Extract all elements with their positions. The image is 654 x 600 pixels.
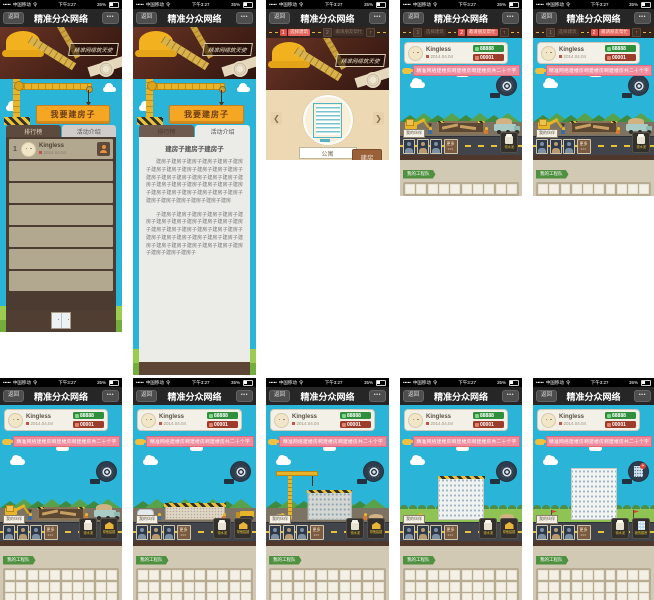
team-slot[interactable] — [639, 570, 649, 580]
team-slot[interactable] — [639, 184, 649, 194]
friend-avatar-card[interactable] — [283, 525, 295, 540]
team-slot[interactable] — [5, 582, 15, 592]
player-card[interactable]: Kingless 2014.04.04 88888 00001 — [404, 42, 508, 64]
blueprint-wheel-badge[interactable]: + — [363, 461, 384, 482]
team-slot[interactable] — [138, 570, 148, 580]
team-slot[interactable] — [484, 582, 494, 592]
blueprint-wheel-badge[interactable]: + — [496, 461, 517, 482]
get-cement-button[interactable]: 领水泥 — [632, 132, 650, 153]
help-build-button[interactable]: 帮他建楼 — [500, 518, 518, 539]
more-friends-button[interactable]: 更多••• — [444, 139, 458, 154]
step-2[interactable]: 2 邀请朋友帮忙 — [323, 28, 365, 37]
team-slot[interactable] — [473, 196, 483, 197]
team-slot[interactable] — [462, 593, 472, 600]
team-slot[interactable] — [416, 196, 426, 197]
player-card[interactable]: Kingless 2014.04.04 88888 00001 — [270, 409, 375, 431]
team-slot[interactable] — [538, 582, 548, 592]
team-grid[interactable] — [536, 182, 651, 196]
friend-avatar-card[interactable] — [550, 139, 562, 154]
team-slot[interactable] — [538, 184, 548, 194]
team-slot[interactable] — [405, 196, 415, 197]
team-slot[interactable] — [583, 593, 593, 600]
back-button[interactable]: 返回 — [3, 12, 24, 24]
team-slot[interactable] — [507, 184, 517, 194]
player-card[interactable]: Kingless 2014.04.04 88888 00001 — [537, 409, 640, 431]
more-friends-button[interactable]: 更多••• — [577, 525, 591, 540]
team-slot[interactable] — [617, 196, 627, 197]
tab-activity-intro[interactable]: 活动介绍 — [62, 125, 117, 137]
more-friends-button[interactable]: 更多••• — [444, 525, 458, 540]
team-slot[interactable] — [207, 593, 217, 600]
blueprint-wheel-badge[interactable]: + — [628, 75, 649, 96]
team-slot[interactable] — [84, 582, 94, 592]
team-slot[interactable] — [538, 570, 548, 580]
team-slot[interactable] — [572, 593, 582, 600]
team-slot[interactable] — [305, 570, 315, 580]
team-slot[interactable] — [241, 570, 251, 580]
team-slot[interactable] — [450, 196, 460, 197]
team-slot[interactable] — [416, 593, 426, 600]
team-slot[interactable] — [405, 570, 415, 580]
more-menu-button[interactable]: ••• — [634, 390, 651, 402]
team-slot[interactable] — [351, 570, 361, 580]
player-card[interactable]: Kingless 2014.04.04 88888 00001 — [404, 409, 508, 431]
team-slot[interactable] — [149, 593, 159, 600]
friend-avatar-card[interactable] — [536, 139, 548, 154]
back-button[interactable]: 返回 — [536, 12, 557, 24]
more-menu-button[interactable]: ••• — [502, 390, 519, 402]
back-button[interactable]: 返回 — [536, 390, 557, 402]
back-button[interactable]: 返回 — [136, 390, 157, 402]
team-slot[interactable] — [583, 196, 593, 197]
team-grid[interactable] — [403, 182, 519, 196]
build-button[interactable]: 建房 — [352, 149, 382, 160]
team-slot[interactable] — [39, 570, 49, 580]
team-slot[interactable] — [583, 570, 593, 580]
get-cement-button[interactable]: 领水泥 — [213, 518, 231, 539]
team-slot[interactable] — [507, 570, 517, 580]
intro-text-area[interactable]: 建房子建房子建房子 建房子建房子建房子建房子建房子建房子建房子建房子建房子建房子… — [139, 137, 250, 362]
team-slot[interactable] — [62, 593, 72, 600]
team-slot[interactable] — [606, 184, 616, 194]
team-slot[interactable] — [496, 593, 506, 600]
team-slot[interactable] — [294, 570, 304, 580]
team-slot[interactable] — [428, 582, 438, 592]
team-slot[interactable] — [473, 582, 483, 592]
team-slot[interactable] — [628, 593, 638, 600]
prev-building-button[interactable]: ❮ — [271, 112, 282, 125]
build-house-sign[interactable]: 我要建房子 — [36, 105, 110, 124]
step-1[interactable]: 1 选择建筑 — [546, 28, 579, 37]
team-slot[interactable] — [328, 582, 338, 592]
team-slot[interactable] — [484, 570, 494, 580]
more-menu-button[interactable]: ••• — [102, 12, 119, 24]
team-slot[interactable] — [62, 582, 72, 592]
promo-banner[interactable]: 精准网络筑天使 — [0, 27, 122, 79]
team-slot[interactable] — [149, 582, 159, 592]
team-slot[interactable] — [138, 593, 148, 600]
team-slot[interactable] — [271, 570, 281, 580]
team-slot[interactable] — [271, 582, 281, 592]
friend-avatar-card[interactable] — [3, 525, 15, 540]
battery-percent: 35% — [629, 2, 638, 7]
team-slot[interactable] — [73, 582, 83, 592]
team-slot[interactable] — [606, 582, 616, 592]
team-slot[interactable] — [39, 593, 49, 600]
team-slot[interactable] — [561, 196, 571, 197]
more-friends-button[interactable]: 更多••• — [177, 525, 191, 540]
team-slot[interactable] — [73, 593, 83, 600]
team-slot[interactable] — [594, 184, 604, 194]
team-slot[interactable] — [496, 582, 506, 592]
team-slot[interactable] — [617, 570, 627, 580]
friend-avatar-card[interactable] — [430, 525, 442, 540]
team-slot[interactable] — [195, 570, 205, 580]
friend-avatar-card[interactable] — [17, 525, 29, 540]
team-slot[interactable] — [96, 593, 106, 600]
dash-divider — [269, 32, 278, 34]
tab-bar: 排行榜 活动介绍 — [133, 125, 256, 137]
team-slot[interactable] — [462, 196, 472, 197]
more-menu-button[interactable]: ••• — [369, 12, 386, 24]
team-slot[interactable] — [561, 184, 571, 194]
team-slot[interactable] — [549, 582, 559, 592]
friend-avatar-card[interactable] — [536, 525, 548, 540]
more-friends-button[interactable]: 更多••• — [44, 525, 58, 540]
team-slot[interactable] — [484, 196, 494, 197]
team-slot[interactable] — [462, 582, 472, 592]
team-slot[interactable] — [351, 582, 361, 592]
friend-avatar-card[interactable] — [403, 139, 415, 154]
team-slot[interactable] — [172, 593, 182, 600]
more-menu-button[interactable]: ••• — [634, 12, 651, 24]
team-slot[interactable] — [428, 184, 438, 194]
friend-avatar-card[interactable] — [150, 525, 162, 540]
friend-avatar-card[interactable] — [550, 525, 562, 540]
more-menu-button[interactable]: ••• — [102, 390, 119, 402]
tab-ranking[interactable]: 排行榜 — [6, 125, 61, 137]
get-cement-button[interactable]: 领水泥 — [500, 132, 518, 153]
team-slot[interactable] — [428, 593, 438, 600]
team-slot[interactable] — [549, 593, 559, 600]
team-slot[interactable] — [572, 582, 582, 592]
team-slot[interactable] — [84, 570, 94, 580]
team-slot[interactable] — [639, 593, 649, 600]
promo-banner[interactable]: 精准网络筑天使 — [133, 27, 256, 79]
blueprint-wheel-badge[interactable]: + — [230, 461, 251, 482]
team-slot[interactable] — [340, 593, 350, 600]
friend-avatar-card[interactable] — [430, 139, 442, 154]
friend-avatar-card[interactable] — [269, 525, 281, 540]
team-slot[interactable] — [16, 570, 26, 580]
team-slot[interactable] — [594, 593, 604, 600]
team-slot[interactable] — [317, 582, 327, 592]
friend-avatar-card[interactable] — [163, 525, 175, 540]
team-slot[interactable] — [328, 593, 338, 600]
team-slot[interactable] — [294, 582, 304, 592]
get-cement-button[interactable]: 领水泥 — [79, 518, 97, 539]
team-slot[interactable] — [507, 196, 517, 197]
team-slot[interactable] — [416, 570, 426, 580]
team-slot[interactable] — [583, 582, 593, 592]
more-friends-button[interactable]: 更多••• — [577, 139, 591, 154]
team-slot[interactable] — [561, 593, 571, 600]
team-slot[interactable] — [439, 570, 449, 580]
collapse-arrow-icon[interactable]: ↑ — [500, 28, 509, 37]
player-card[interactable]: Kingless 2014.04.04 88888 00001 — [137, 409, 242, 431]
team-slot[interactable] — [594, 196, 604, 197]
team-slot[interactable] — [305, 582, 315, 592]
team-slot[interactable] — [161, 593, 171, 600]
step-2[interactable]: 2 邀请朋友帮忙 — [591, 29, 631, 36]
team-slot[interactable] — [416, 184, 426, 194]
friend-avatar-card[interactable] — [417, 139, 429, 154]
team-slot[interactable] — [538, 196, 548, 197]
team-slot[interactable] — [583, 184, 593, 194]
team-slot[interactable] — [405, 593, 415, 600]
friend-avatar-card[interactable] — [136, 525, 148, 540]
more-menu-button[interactable]: ••• — [236, 12, 253, 24]
team-slot[interactable] — [639, 196, 649, 197]
team-slot[interactable] — [439, 593, 449, 600]
tab-activity-intro[interactable]: 活动介绍 — [195, 125, 250, 137]
team-slot[interactable] — [282, 582, 292, 592]
more-menu-button[interactable]: ••• — [236, 390, 253, 402]
team-slot[interactable] — [230, 593, 240, 600]
team-slot[interactable] — [28, 593, 38, 600]
team-slot[interactable] — [172, 582, 182, 592]
team-slot[interactable] — [496, 184, 506, 194]
team-slot[interactable] — [628, 184, 638, 194]
friend-avatar-card[interactable] — [30, 525, 42, 540]
team-slot[interactable] — [50, 582, 60, 592]
collapse-arrow-icon[interactable]: ↑ — [366, 28, 375, 37]
team-slot[interactable] — [282, 570, 292, 580]
team-slot[interactable] — [351, 593, 361, 600]
team-slot[interactable] — [538, 593, 548, 600]
team-slot[interactable] — [496, 196, 506, 197]
team-slot[interactable] — [73, 570, 83, 580]
collapse-arrow-icon[interactable]: ↑ — [632, 28, 641, 37]
team-slot[interactable] — [84, 593, 94, 600]
help-build-button[interactable]: 我的楼房 — [632, 518, 650, 539]
team-slot[interactable] — [241, 593, 251, 600]
team-slot[interactable] — [507, 582, 517, 592]
team-slot[interactable] — [294, 593, 304, 600]
team-slot[interactable] — [50, 593, 60, 600]
friend-avatar-card[interactable] — [403, 525, 415, 540]
team-slot[interactable] — [484, 184, 494, 194]
team-slot[interactable] — [628, 570, 638, 580]
team-slot[interactable] — [16, 593, 26, 600]
team-slot[interactable] — [450, 582, 460, 592]
more-friends-button[interactable]: 更多••• — [310, 525, 324, 540]
team-grid[interactable] — [536, 568, 651, 600]
team-slot[interactable] — [450, 184, 460, 194]
team-slot[interactable] — [450, 570, 460, 580]
team-slot[interactable] — [184, 570, 194, 580]
get-cement-button[interactable]: 领水泥 — [346, 518, 364, 539]
team-slot[interactable] — [172, 570, 182, 580]
team-slot[interactable] — [317, 570, 327, 580]
back-button[interactable]: 返回 — [269, 390, 290, 402]
team-slot[interactable] — [363, 570, 373, 580]
team-slot[interactable] — [218, 570, 228, 580]
team-slot[interactable] — [439, 196, 449, 197]
wifi-icon: 令 — [166, 2, 171, 8]
team-slot[interactable] — [496, 570, 506, 580]
team-slot[interactable] — [639, 582, 649, 592]
team-slot[interactable] — [28, 582, 38, 592]
team-slot[interactable] — [363, 593, 373, 600]
team-slot[interactable] — [218, 582, 228, 592]
team-slot[interactable] — [5, 570, 15, 580]
team-slot[interactable] — [572, 196, 582, 197]
help-build-button[interactable]: 帮他建楼 — [100, 518, 118, 539]
team-slot[interactable] — [628, 582, 638, 592]
team-slot[interactable] — [207, 582, 217, 592]
back-button[interactable]: 返回 — [136, 12, 157, 24]
team-slot[interactable] — [207, 570, 217, 580]
team-slot[interactable] — [96, 582, 106, 592]
team-slot[interactable] — [230, 582, 240, 592]
team-slot[interactable] — [450, 593, 460, 600]
team-slot[interactable] — [374, 570, 384, 580]
team-slot[interactable] — [439, 184, 449, 194]
step-2[interactable]: 2 邀请朋友帮忙 — [458, 29, 498, 36]
friend-avatar-card[interactable] — [563, 139, 575, 154]
get-cement-button[interactable]: 领水泥 — [479, 518, 497, 539]
get-cement-button[interactable]: 领水泥 — [611, 518, 629, 539]
blueprint-wheel-badge[interactable]: + — [96, 461, 117, 482]
player-card[interactable]: Kingless 2014.04.04 88888 00001 — [4, 409, 108, 431]
team-slot[interactable] — [149, 570, 159, 580]
team-slot[interactable] — [473, 593, 483, 600]
team-slot[interactable] — [594, 582, 604, 592]
team-slot[interactable] — [439, 582, 449, 592]
friend-avatar-card[interactable] — [417, 525, 429, 540]
team-slot[interactable] — [462, 570, 472, 580]
team-slot[interactable] — [606, 593, 616, 600]
team-slot[interactable] — [561, 570, 571, 580]
team-slot[interactable] — [16, 582, 26, 592]
team-slot[interactable] — [340, 570, 350, 580]
blueprint-wheel-badge[interactable]: + — [496, 75, 517, 96]
team-slot[interactable] — [195, 593, 205, 600]
team-slot[interactable] — [561, 582, 571, 592]
team-slot[interactable] — [428, 196, 438, 197]
team-slot[interactable] — [161, 570, 171, 580]
team-slot[interactable] — [405, 582, 415, 592]
team-slot[interactable] — [96, 570, 106, 580]
team-slot[interactable] — [462, 184, 472, 194]
team-slot[interactable] — [271, 593, 281, 600]
team-slot[interactable] — [328, 570, 338, 580]
team-grid[interactable] — [269, 568, 386, 600]
help-build-button[interactable]: 帮他建楼 — [234, 518, 252, 539]
team-slot[interactable] — [507, 593, 517, 600]
team-slot[interactable] — [606, 196, 616, 197]
team-slot[interactable] — [617, 593, 627, 600]
team-slot[interactable] — [594, 570, 604, 580]
team-slot[interactable] — [374, 593, 384, 600]
team-grid[interactable] — [136, 568, 253, 600]
team-grid[interactable] — [3, 568, 119, 600]
team-slot[interactable] — [363, 582, 373, 592]
next-building-button[interactable]: ❯ — [373, 112, 384, 125]
team-slot[interactable] — [241, 582, 251, 592]
team-slot[interactable] — [218, 593, 228, 600]
team-slot[interactable] — [138, 582, 148, 592]
team-slot[interactable] — [628, 196, 638, 197]
team-slot[interactable] — [549, 196, 559, 197]
team-slot[interactable] — [617, 184, 627, 194]
team-slot[interactable] — [473, 184, 483, 194]
flag-icon — [426, 422, 429, 425]
tab-ranking[interactable]: 排行榜 — [139, 125, 194, 137]
team-grid[interactable] — [403, 568, 519, 600]
team-slot[interactable] — [230, 570, 240, 580]
team-slot[interactable] — [428, 570, 438, 580]
team-slot[interactable] — [305, 593, 315, 600]
promo-banner[interactable]: 精准网络筑天使 — [266, 38, 389, 90]
team-slot[interactable] — [107, 582, 117, 592]
team-slot[interactable] — [50, 570, 60, 580]
back-button[interactable]: 返回 — [3, 390, 24, 402]
team-slot[interactable] — [606, 570, 616, 580]
team-slot[interactable] — [473, 570, 483, 580]
team-slot[interactable] — [617, 582, 627, 592]
back-button[interactable]: 返回 — [403, 12, 424, 24]
team-slot[interactable] — [549, 570, 559, 580]
team-slot[interactable] — [195, 582, 205, 592]
back-button[interactable]: 返回 — [403, 390, 424, 402]
more-menu-button[interactable]: ••• — [502, 12, 519, 24]
table-row[interactable]: 1 Kingless 2014.04.04 — [9, 139, 113, 159]
team-slot[interactable] — [416, 582, 426, 592]
team-slot[interactable] — [340, 582, 350, 592]
back-button[interactable]: 返回 — [269, 12, 290, 24]
build-house-sign[interactable]: 我要建房子 — [169, 105, 244, 124]
team-slot[interactable] — [161, 582, 171, 592]
blueprint-wheel-badge[interactable]: + — [628, 461, 649, 482]
team-slot[interactable] — [405, 184, 415, 194]
team-slot[interactable] — [5, 593, 15, 600]
help-build-button[interactable]: 帮他建楼 — [367, 518, 385, 539]
team-slot[interactable] — [107, 593, 117, 600]
add-friend-button[interactable] — [97, 142, 110, 156]
team-slot[interactable] — [39, 582, 49, 592]
team-slot[interactable] — [374, 582, 384, 592]
team-slot[interactable] — [184, 593, 194, 600]
team-slot[interactable] — [572, 184, 582, 194]
friend-avatar-card[interactable] — [296, 525, 308, 540]
team-slot[interactable] — [549, 184, 559, 194]
step-1[interactable]: 1 选择建筑 — [280, 29, 311, 36]
team-slot[interactable] — [282, 593, 292, 600]
team-slot[interactable] — [107, 570, 117, 580]
friend-avatar-card[interactable] — [563, 525, 575, 540]
step-1[interactable]: 1 选择建筑 — [413, 28, 446, 37]
player-card[interactable]: Kingless 2014.04.04 88888 00001 — [537, 42, 640, 64]
team-slot[interactable] — [184, 582, 194, 592]
team-slot[interactable] — [484, 593, 494, 600]
more-menu-button[interactable]: ••• — [369, 390, 386, 402]
team-slot[interactable] — [62, 570, 72, 580]
team-slot[interactable] — [572, 570, 582, 580]
team-slot[interactable] — [317, 593, 327, 600]
team-slot[interactable] — [28, 570, 38, 580]
